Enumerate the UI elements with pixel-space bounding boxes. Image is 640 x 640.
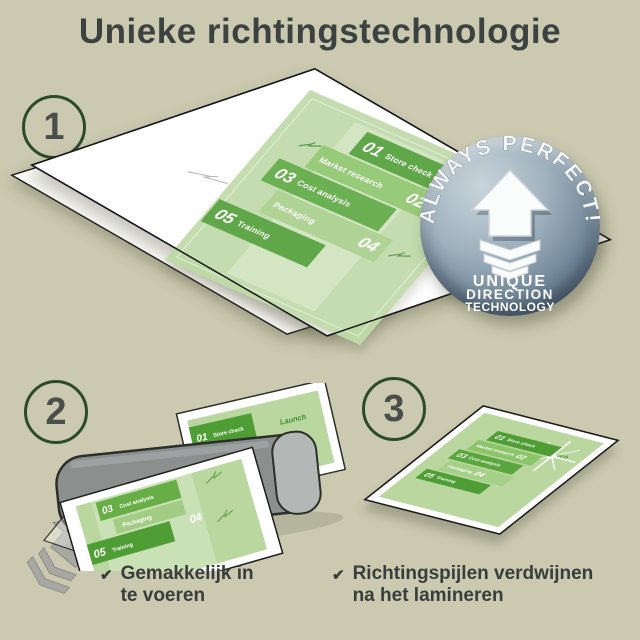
laminator-end-cap (270, 430, 322, 516)
page-title: Unieke richtingstechnologie (0, 12, 640, 52)
badge-graphic: ALWAYS PERFECT! UNIQUE DIRECTION TECHNOL… (420, 136, 600, 316)
check-icon: ✔ (100, 563, 113, 584)
laminator-illustration: 01 Store check Launch 03 Cost analysis P… (40, 383, 352, 571)
caption-line: na het lamineren (353, 585, 594, 607)
check-icon: ✔ (332, 563, 345, 584)
badge-line-3: TECHNOLOGY (465, 300, 555, 314)
up-arrow-icon (472, 170, 552, 279)
always-perfect-badge: ALWAYS PERFECT! UNIQUE DIRECTION TECHNOL… (420, 136, 600, 316)
caption-arrows-disappear: ✔ Richtingspijlen verdwijnen na het lami… (332, 563, 593, 608)
step-3-number: 3 (362, 377, 426, 441)
doc-step-label: Store check (505, 438, 537, 449)
doc-step-label: Packaging (446, 464, 475, 474)
caption-line: te voeren (121, 585, 254, 607)
caption-easy-feed: ✔ Gemakkelijk in te voeren (100, 563, 254, 608)
caption-line: Richtingspijlen verdwijnen (353, 563, 594, 585)
doc-step-label: Training (434, 475, 458, 484)
doc-step-number: 04 (472, 470, 488, 478)
caption-line: Gemakkelijk in (121, 563, 254, 585)
doc-step-number: 02 (513, 453, 529, 461)
